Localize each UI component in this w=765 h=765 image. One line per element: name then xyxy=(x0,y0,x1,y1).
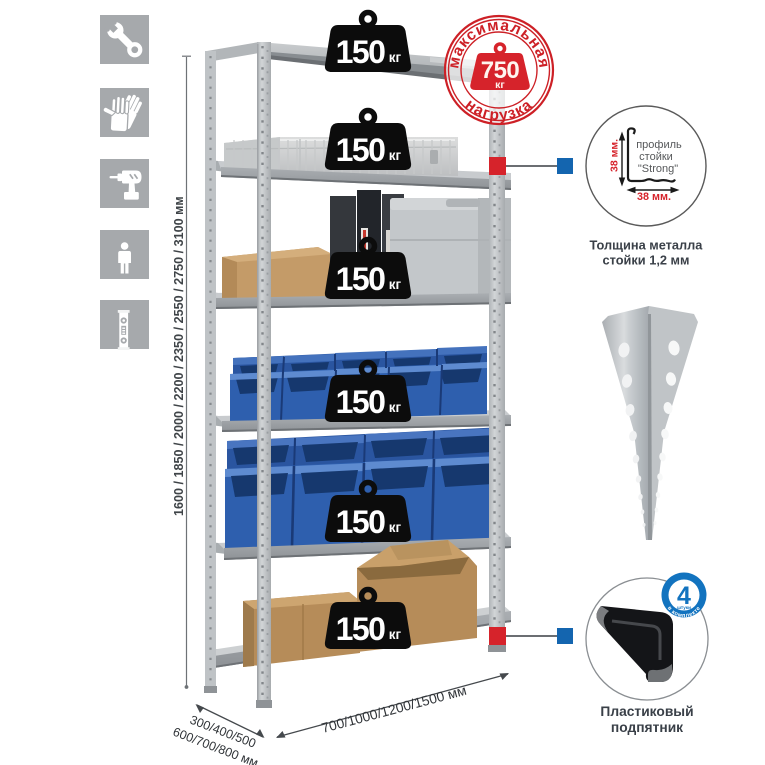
svg-text:700/1000/1200/1500 мм: 700/1000/1200/1500 мм xyxy=(320,683,468,736)
svg-text:38 мм.: 38 мм. xyxy=(609,139,621,172)
svg-text:подпятник: подпятник xyxy=(611,720,683,735)
svg-text:стойки: стойки xyxy=(639,151,673,163)
svg-text:штуки: штуки xyxy=(677,605,691,610)
svg-text:Толщина металла: Толщина металла xyxy=(590,238,704,253)
svg-text:Пластиковый: Пластиковый xyxy=(600,704,693,719)
svg-text:"Strong": "Strong" xyxy=(638,163,678,175)
svg-text:стойки 1,2 мм: стойки 1,2 мм xyxy=(602,253,689,268)
svg-text:профиль: профиль xyxy=(636,139,682,151)
svg-text:1600 / 1850 / 2000 / 2200 / 23: 1600 / 1850 / 2000 / 2200 / 2350 / 2550 … xyxy=(172,196,186,516)
svg-text:кг: кг xyxy=(495,79,505,91)
svg-text:38 мм.: 38 мм. xyxy=(637,191,671,203)
